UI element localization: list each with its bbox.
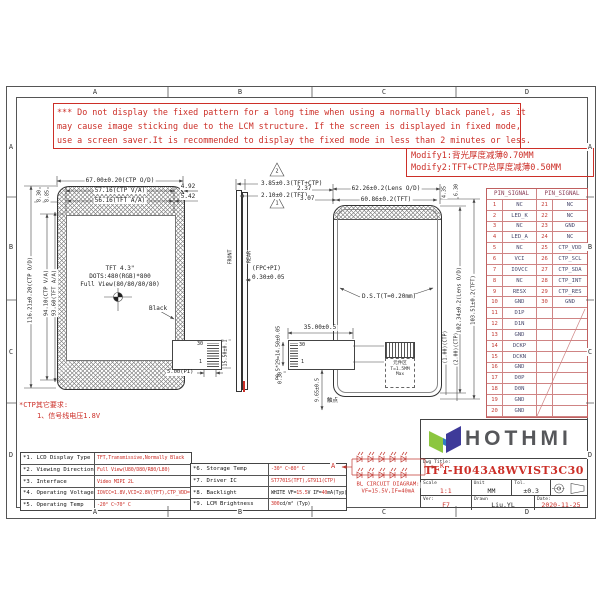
pin-number: 19 (487, 395, 503, 406)
dim-offset-1: 2.37 (296, 186, 312, 192)
spec-value: Video MIPI 2L (95, 476, 191, 487)
pin-number: 16 (487, 363, 503, 374)
fpc-mid-pin30: 30 (298, 343, 306, 348)
backlight-prefix: WHITE VF= (271, 490, 296, 496)
pin-number: 11 (487, 308, 503, 319)
fpc-mid-pin1: 1 (300, 360, 305, 365)
pin-signal: GND (503, 395, 537, 406)
pin-number: 21 (537, 200, 553, 211)
panel-size-label: TFT 4.3" (105, 266, 136, 272)
pin-signal: D1P (503, 308, 537, 319)
pin-number (537, 395, 553, 406)
pin-number (537, 352, 553, 363)
zone-letter: B (237, 508, 243, 516)
pin-signal (553, 384, 587, 395)
pin-signal: GND (503, 406, 537, 417)
pin-number: 30 (537, 297, 553, 308)
bl-diagram-spec: VF=15.5V,IF=40mA (361, 489, 416, 495)
date-cell: Date: 2020-11-25 (535, 496, 587, 510)
dim-lens-od-width: 62.26±0.2(Lens O/D) (351, 186, 422, 192)
fpc-t-dim: 0.30 (279, 371, 284, 385)
spec-value: -20° C~70° C (95, 500, 191, 511)
pin-number: 2 (487, 211, 503, 222)
version-row: Ver: F7 Drawn Liu.YL Date: 2020-11-25 (421, 496, 587, 509)
version-value: F7 (442, 501, 450, 509)
spec-value: ST7701S(TFT),GT911(CTP) (269, 476, 346, 487)
pin-signal: D0N (503, 384, 537, 395)
spec-value: Full View(U80/D80/R80/L80) (95, 465, 191, 476)
spec-row: *3. Interface Video MIPI 2L (21, 476, 191, 488)
pin-table-header-right: PIN_SIGNAL (537, 189, 587, 200)
pin-signal: NC (553, 211, 587, 222)
drawing-number: TFT-H043A8WVIST3C30 (421, 464, 587, 477)
drawn-label: Drawn (474, 497, 488, 502)
pin-signal (553, 330, 587, 341)
dim-ctp-1: (1.00)(CTP) (444, 329, 449, 364)
pin-signal (553, 373, 587, 384)
dim-tft-aa-width: 56.16(TFT A/A) (94, 198, 147, 204)
dim-back-r2: 6.30 (455, 183, 460, 197)
pin-signal: DCKN (503, 352, 537, 363)
spec-value: WHITE VF=15.5 V IF= 40mA(Typ) (269, 487, 346, 498)
dim-right-1: 4.92 (180, 184, 196, 190)
zone-letter: C (381, 508, 387, 516)
pin-number: 29 (537, 287, 553, 298)
scale-label: Scale (423, 481, 437, 486)
pin-number: 12 (487, 319, 503, 330)
pin-signal: NC (503, 222, 537, 233)
panel-dots-label: DOTS:480(RGB)*800 (88, 274, 151, 280)
pin-signal: CTP_RES (553, 287, 587, 298)
dim-tft-height: 103.51±0.2(TFT) (471, 274, 477, 326)
revision-flag-1: 1 (274, 202, 279, 207)
spec-row: *8. Backlight WHITE VF=15.5 V IF= 40mA(T… (191, 487, 346, 499)
unit-cell: Unit MM (472, 480, 513, 496)
fpc-contact-label: 触点 (326, 399, 339, 405)
pin-signal: D1N (503, 319, 537, 330)
pin-signal (553, 341, 587, 352)
pin-signal: LED_A (503, 232, 537, 243)
pin-signal: GND (503, 330, 537, 341)
spec-table-left: *1. LCD Display Type TFT,Transmissive,No… (20, 452, 192, 511)
pin-number: 27 (537, 265, 553, 276)
pin-number: 15 (487, 352, 503, 363)
spec-label: *1. LCD Display Type (21, 453, 95, 464)
pin-signal (553, 352, 587, 363)
pin-signal: LED_K (503, 211, 537, 222)
version-label: Ver: (423, 497, 434, 502)
fpc-pin1-label: 1 (198, 360, 203, 365)
dim-left-1: 8.30 (38, 189, 43, 203)
date-label: Date: (537, 497, 551, 502)
pin-signal: CTP_SCL (553, 254, 587, 265)
spec-label: *7. Driver IC (191, 476, 269, 487)
fpc-thickness-label: 0.30±0.05 (251, 275, 286, 281)
pin-signal (553, 319, 587, 330)
revision-flag-2: 2 (274, 170, 279, 175)
pin-signal: D0P (503, 373, 537, 384)
pin-signal: RESX (503, 287, 537, 298)
spec-label: *9. LCM Brightness (191, 499, 269, 510)
scale-value: 1:1 (440, 487, 452, 495)
dim-tft-aa-height: 93.60(TFT A/A) (52, 269, 58, 317)
spec-label: *5. Operating Temp (21, 500, 95, 511)
zone-letter: D (524, 508, 530, 516)
zone-letter: A (8, 143, 14, 151)
pin-number: 8 (487, 276, 503, 287)
fpc-height-dim: 15.50±0.1 (224, 338, 229, 367)
pin-signal: GND (553, 297, 587, 308)
scale-cell: Scale 1:1 (421, 480, 472, 496)
dim-ctp-2: (2.00)(CTP) (455, 331, 460, 366)
ctp-note-title: *CTP其它要求: (18, 402, 69, 409)
ctp-note-item: 1、信号线电压1.8V (36, 413, 101, 420)
tolerance-value: ±0.3 (523, 487, 539, 495)
pin-number: 5 (487, 243, 503, 254)
pin-number: 9 (487, 287, 503, 298)
bl-anode-label: A (330, 463, 336, 470)
unit-value: MM (488, 487, 496, 495)
zone-letter: D (8, 451, 14, 459)
front-face-label: FRONT (229, 248, 234, 265)
dim-back-r1: 4.35 (443, 185, 448, 199)
pin-signal-table: PIN_SIGNAL PIN_SIGNAL 1NC21NC2LED_K22NC3… (486, 188, 588, 418)
tolerance-cell: Tol. ±0.3 (512, 480, 551, 496)
backlight-suffix: mA(Typ) (327, 490, 346, 496)
spec-row: *1. LCD Display Type TFT,Transmissive,No… (21, 453, 191, 465)
rear-face-label: REAR (248, 250, 253, 264)
pin-signal: VCI (503, 254, 537, 265)
version-cell: Ver: F7 (421, 496, 472, 510)
zone-letter: B (587, 243, 593, 251)
dim-right-2: 5.42 (180, 194, 196, 200)
dst-label: D.S.T(T=0.20mm) (361, 294, 417, 300)
pin-number (537, 406, 553, 417)
pin-number: 26 (537, 254, 553, 265)
dim-tft-width: 60.86±0.2(TFT) (360, 197, 413, 203)
pin-number: 4 (487, 232, 503, 243)
pin-signal: GND (553, 222, 587, 233)
fpc-width-dim: 35.00±0.5 (303, 325, 338, 331)
spec-row: *4. Operating Voltage IOVCC=1.8V,VCI=2.8… (21, 488, 191, 500)
dim-offset-2: 3.07 (299, 196, 315, 202)
drawing-title-row: Dwg Title: TFT-H043A8WVIST3C30 (421, 459, 587, 480)
zone-letter: C (8, 348, 14, 356)
pin-number: 14 (487, 341, 503, 352)
fpc-h2-dim: 9.65±0.5 (316, 377, 321, 403)
zone-letter: B (8, 243, 14, 251)
fpc-pi-dim: 5.00(PI) (166, 370, 195, 376)
hothmi-logo-icon (427, 423, 463, 455)
pin-signal: IOVCC (503, 265, 537, 276)
pin-table-header-left: PIN_SIGNAL (487, 189, 537, 200)
pin-number: 24 (537, 232, 553, 243)
dim-ctp-od-height: 116.21±0.20(CTP O/D) (28, 256, 34, 324)
backlight-mid: V IF= (308, 490, 322, 496)
zone-letter: B (237, 88, 243, 96)
pin-signal: GND (503, 297, 537, 308)
zone-letter: A (92, 508, 98, 516)
dim-left-2: 8.85 (46, 189, 51, 203)
drawing-sheet: *** Do not display the fixed pattern for… (0, 0, 600, 600)
pin-signal: NC (553, 200, 587, 211)
zone-letter: D (587, 451, 593, 459)
pin-number: 23 (537, 222, 553, 233)
fpc-pi-label: (FPC+PI) (251, 266, 282, 272)
pin-signal: CTP_INT (553, 276, 587, 287)
dim-stack-thickness: 3.85±0.3(TFT+CTP) (260, 181, 323, 187)
spec-label: *3. Interface (21, 476, 95, 487)
pin-number: 7 (487, 265, 503, 276)
spec-row: *2. Viewing Direction Full View(U80/D80/… (21, 465, 191, 477)
spec-value: 300 cd/m² (Typ) (269, 499, 346, 510)
pin-signal: NC (503, 276, 537, 287)
pin-number: 1 (487, 200, 503, 211)
zone-letter: A (587, 143, 593, 151)
dim-ctp-va-width: 57.16(CTP V/A) (94, 188, 147, 194)
pin-number: 6 (487, 254, 503, 265)
pin-number (537, 308, 553, 319)
pin-signal: GND (503, 363, 537, 374)
dim-lens-od-height: 102.34±0.2(Lens O/D) (457, 266, 463, 334)
spec-label: *4. Operating Voltage (21, 488, 95, 499)
spec-label: *6. Storage Temp (191, 464, 269, 475)
dim-ctp-od-width: 67.00±0.20(CTP O/D) (85, 178, 156, 184)
bl-diagram-title: BL CIRCUIT DIAGRAM: (356, 482, 421, 488)
pin-signal: NC (503, 200, 537, 211)
spec-label: *8. Backlight (191, 487, 269, 498)
spec-row: *7. Driver IC ST7701S(TFT),GT911(CTP) (191, 476, 346, 488)
third-angle-projection-icon (551, 482, 587, 495)
brightness-value: 300 (271, 501, 279, 507)
pin-number: 25 (537, 243, 553, 254)
pin-number: 3 (487, 222, 503, 233)
pin-signal (553, 363, 587, 374)
pin-number: 28 (537, 276, 553, 287)
pin-signal (553, 308, 587, 319)
spec-value: IOVCC=1.8V,VCI=2.8V(TFT),CTP_VDD=2.8V (95, 488, 191, 499)
dim-ctp-va-height: 94.10(CTP V/A) (44, 269, 50, 317)
pin-number (537, 373, 553, 384)
pin-signal (553, 406, 587, 417)
pin-signal: CTP_SDA (553, 265, 587, 276)
spec-row: *6. Storage Temp -30° C~80° C (191, 464, 346, 476)
spec-label: *2. Viewing Direction (21, 465, 95, 476)
black-border-label: Black (148, 306, 168, 312)
zone-letter: C (587, 348, 593, 356)
logo-row: HOTHMI (421, 420, 587, 459)
spec-row: *5. Operating Temp -20° C~70° C (21, 500, 191, 511)
spec-table-middle: *6. Storage Temp -30° C~80° C *7. Driver… (190, 463, 347, 511)
pin-number: 20 (487, 406, 503, 417)
pin-signal: DCKP (503, 341, 537, 352)
spec-row: *9. LCM Brightness 300 cd/m² (Typ) (191, 499, 346, 510)
pin-number (537, 341, 553, 352)
zone-letter: A (92, 88, 98, 96)
pin-number: 17 (487, 373, 503, 384)
date-value: 2020-11-25 (541, 501, 580, 509)
bl-cathode-label: K (439, 463, 445, 470)
zone-letter: C (381, 88, 387, 96)
brightness-unit: cd/m² (Typ) (279, 501, 310, 507)
zone-letter: D (524, 88, 530, 96)
pin-number: 18 (487, 384, 503, 395)
drawn-value: Liu.YL (491, 501, 514, 509)
pin-number (537, 319, 553, 330)
spec-value: TFT,Transmissive,Normally Black (95, 453, 191, 464)
scale-row: Scale 1:1 Unit MM Tol. ±0.3 (421, 480, 587, 496)
brand-name: HOTHMI (465, 427, 572, 451)
pin-number (537, 384, 553, 395)
pin-signal (553, 395, 587, 406)
pin-number (537, 330, 553, 341)
pin-signal: NC (503, 243, 537, 254)
projection-cell (551, 480, 587, 496)
pin-signal: NC (553, 232, 587, 243)
pin-number (537, 363, 553, 374)
pin-number: 22 (537, 211, 553, 222)
pin-number: 13 (487, 330, 503, 341)
pin-signal: CTP_VDD (553, 243, 587, 254)
unit-label: Unit (474, 481, 485, 486)
panel-view-label: Full View(80/80/80/80) (79, 282, 160, 288)
backlight-vf: 15.5 (296, 490, 307, 496)
pin-number: 10 (487, 297, 503, 308)
fpc-pin30-label: 30 (196, 342, 204, 347)
tolerance-label: Tol. (514, 481, 525, 486)
